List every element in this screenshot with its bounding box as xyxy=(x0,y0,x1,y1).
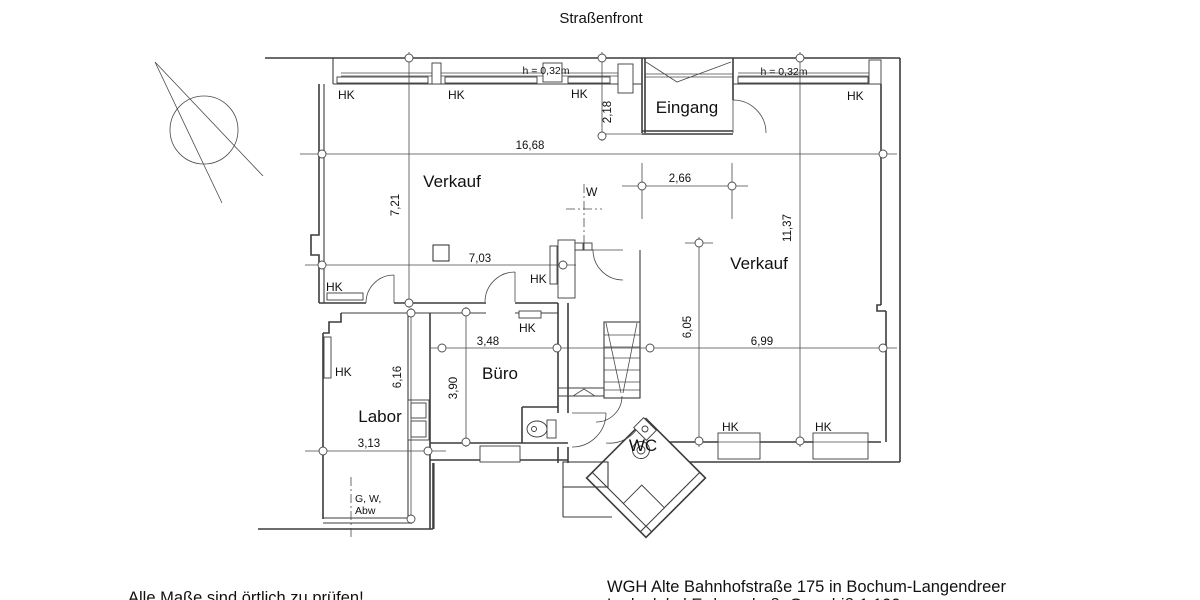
radiator xyxy=(337,77,428,83)
radiator-label: HK xyxy=(722,420,739,434)
radiator-label: HK xyxy=(338,88,355,102)
dim-buero-depth: 3,90 xyxy=(448,377,460,399)
door-swing xyxy=(366,275,394,303)
lower-chamber xyxy=(563,462,608,487)
radiator-label: HK xyxy=(530,272,547,286)
toilet-detail xyxy=(532,427,537,432)
room-label-eingang: Eingang xyxy=(656,98,718,117)
radiator xyxy=(813,433,868,459)
meter-box xyxy=(575,243,583,250)
axis-w-label: W xyxy=(586,185,598,199)
toilet-bowl xyxy=(527,421,547,437)
step xyxy=(480,446,520,462)
project-title: WGH Alte Bahnhofstraße 175 in Bochum-Lan… xyxy=(607,578,1006,596)
radiator-label: HK xyxy=(326,280,343,294)
radiator xyxy=(327,293,363,300)
radiator-label: HK xyxy=(519,321,536,335)
radiator-label: HK xyxy=(335,365,352,379)
room-label-buero: Büro xyxy=(482,364,518,383)
door-swing xyxy=(593,250,623,280)
street-front-title: Straßenfront xyxy=(559,10,643,27)
toilet-cistern xyxy=(547,420,556,438)
dim-stair-depth: 6,05 xyxy=(682,316,694,338)
radiator xyxy=(324,337,331,378)
door-swing xyxy=(485,272,515,302)
dim-front-width: 16,68 xyxy=(516,140,545,152)
entrance-door-swing xyxy=(733,100,766,133)
north-arrow-icon xyxy=(155,62,263,203)
sill-height-label: h = 0,32m xyxy=(523,65,570,77)
radiator-label: HK xyxy=(448,88,465,102)
project-subtitle: Ladenlokal Erdgeschoß, Grundriß 1:100 xyxy=(607,596,901,600)
radiator xyxy=(568,77,610,83)
dim-right-depth: 11,37 xyxy=(782,214,794,242)
doors xyxy=(366,250,640,447)
sink-basin xyxy=(411,403,426,418)
room-label-verkauf-left: Verkauf xyxy=(423,172,481,191)
dimension-lines xyxy=(300,52,897,524)
dim-verkauf-left-width: 7,03 xyxy=(469,253,491,265)
door-swing xyxy=(596,396,622,422)
front-pier xyxy=(618,64,633,93)
room-label-verkauf-right: Verkauf xyxy=(730,254,788,273)
radiator-label: HK xyxy=(847,89,864,103)
radiator xyxy=(718,433,760,459)
dim-verkauf-left-depth: 7,21 xyxy=(390,194,402,216)
toilet-detail xyxy=(642,426,648,432)
entrance-vestibule: Eingang xyxy=(642,58,766,134)
dim-labor-depth: 6,16 xyxy=(392,366,404,388)
meter-box xyxy=(584,243,592,250)
radiator xyxy=(519,311,541,318)
radiator xyxy=(445,77,537,83)
staircase xyxy=(604,322,640,398)
dim-verkauf-right-width: 6,99 xyxy=(751,336,773,348)
room-label-labor: Labor xyxy=(358,407,402,426)
title-block: Alle Maße sind örtlich zu prüfen! WGH Al… xyxy=(128,578,1006,600)
room-label-wc: WC xyxy=(629,436,657,455)
utilities-label: Abw xyxy=(355,505,376,517)
sill-height-label: h = 0,32m xyxy=(761,66,808,78)
column xyxy=(433,245,449,261)
radiator-label: HK xyxy=(815,420,832,434)
dim-entrance-depth: 2,18 xyxy=(602,101,614,123)
floor-plan-drawing: Straßenfront HK HK HK HK h = 0,32m h = 0… xyxy=(0,0,1200,600)
front-pier xyxy=(869,60,881,84)
sink-basin xyxy=(411,421,426,437)
wc-room: WC xyxy=(587,418,706,538)
utilities-label: G, W, xyxy=(355,493,381,505)
dim-buero-width: 3,48 xyxy=(477,336,499,348)
dimension-labels: 16,68 2,66 7,03 3,48 6,99 3,13 7,21 2,18… xyxy=(358,101,794,450)
radiator-label: HK xyxy=(571,87,588,101)
fixtures xyxy=(324,246,868,459)
dim-labor-width: 3,13 xyxy=(358,438,380,450)
front-pier xyxy=(432,63,441,84)
chimney xyxy=(558,240,575,298)
dim-entrance-width: 2,66 xyxy=(669,173,691,185)
street-front-wall: HK HK HK HK h = 0,32m h = 0,32m xyxy=(265,58,900,134)
door-swing xyxy=(572,413,606,447)
measure-note: Alle Maße sind örtlich zu prüfen! xyxy=(128,589,364,600)
